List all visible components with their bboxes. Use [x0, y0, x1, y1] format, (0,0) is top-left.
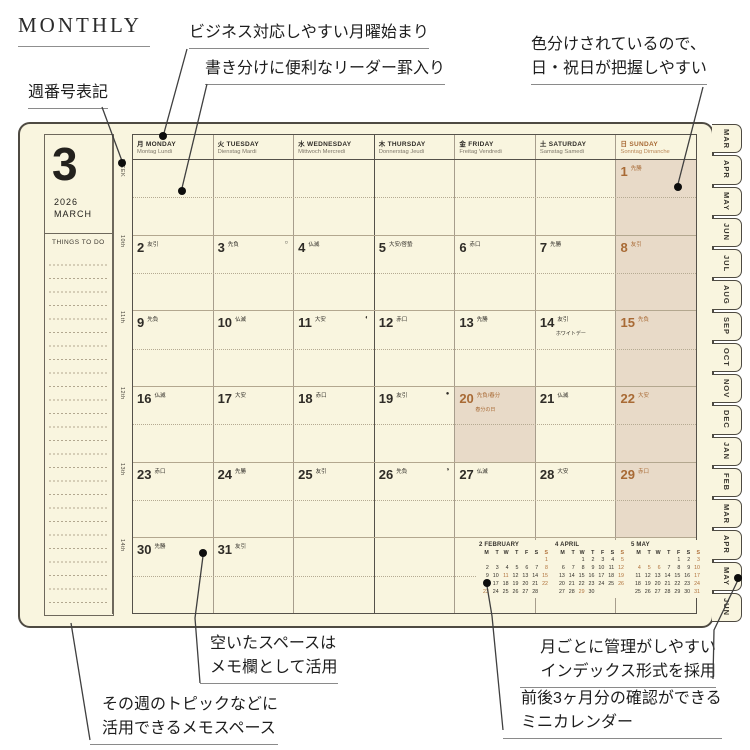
- date-number: 22: [620, 391, 634, 406]
- date-number: 3: [218, 240, 225, 255]
- mini-date: [528, 557, 538, 564]
- mini-date: 6: [555, 565, 565, 572]
- annotation-mini-calendar-line1: 前後3ヶ月分の確認ができる: [521, 687, 722, 711]
- day-cell: 31友引: [214, 538, 295, 613]
- mini-date: 9: [585, 565, 595, 572]
- mini-date: [604, 589, 614, 596]
- mini-calendar-title: 4 APRIL: [555, 542, 624, 548]
- rokuyo-label: 赤口: [638, 469, 649, 475]
- date-number: 27: [459, 467, 473, 482]
- mini-date: 7: [528, 565, 538, 572]
- month-tab-label: MAY: [722, 567, 731, 586]
- mini-date: 10: [594, 565, 604, 572]
- date-number: 6: [459, 240, 466, 255]
- rokuyo-label: 赤口: [470, 242, 481, 248]
- day-header-subtitle: Donnerstag Jeudi: [379, 149, 455, 155]
- mini-date: 3: [594, 557, 604, 564]
- date-number: 9: [137, 315, 144, 330]
- month-tab-mar-2: MAR: [712, 499, 742, 528]
- mini-dow-label: F: [518, 550, 528, 557]
- mini-date: 30: [680, 589, 690, 596]
- week-number-label: 10th: [119, 235, 125, 248]
- mini-date: 11: [604, 565, 614, 572]
- month-tab-label: JUL: [722, 255, 731, 272]
- mini-date: 17: [690, 573, 700, 580]
- mini-dow-label: S: [614, 550, 624, 557]
- day-cell: 10仏滅: [214, 311, 295, 386]
- mini-date: 31: [690, 589, 700, 596]
- mini-dow-label: T: [489, 550, 499, 557]
- annotation-memo-space: 空いたスペースは メモ欄として活用: [200, 632, 338, 684]
- date-number: 10: [218, 315, 232, 330]
- day-cell: 7先勝: [536, 236, 617, 311]
- day-cell: 5大安/啓蟄: [374, 236, 456, 311]
- week-row: 2友引3先負○4仏滅5大安/啓蟄6赤口7先勝8友引: [133, 236, 696, 312]
- mini-calendar-title: 2 FEBRUARY: [479, 542, 548, 548]
- product-sheet: MONTHLY ビジネス対応しやすい月曜始まり 書き分けに便利なリーダー罫入り …: [0, 0, 750, 750]
- month-tab-may-2: MAY: [712, 562, 742, 591]
- mini-date: 16: [680, 573, 690, 580]
- mini-date: 16: [479, 581, 489, 588]
- mini-date: 23: [585, 581, 595, 588]
- week-row: 1先勝: [133, 160, 696, 236]
- day-cell: [536, 160, 617, 235]
- mini-date: [499, 557, 509, 564]
- annotation-memo-space-line1: 空いたスペースは: [210, 632, 338, 656]
- annotation-index-tabs-line2: インデックス形式を採用: [520, 660, 716, 684]
- mini-date: 30: [585, 589, 595, 596]
- month-tab-label: AUG: [722, 285, 731, 305]
- annotation-index-tabs-line1: 月ごとに管理がしやすい: [520, 636, 716, 660]
- mini-date: 14: [661, 573, 671, 580]
- mini-date: [631, 557, 641, 564]
- day-header-label: 水 WEDNESDAY: [298, 138, 374, 148]
- month-tab-jun-2: JUN: [712, 593, 742, 622]
- month-tab-aug: AUG: [712, 280, 742, 309]
- day-cell: 17大安: [214, 387, 295, 462]
- mini-dow-label: W: [651, 550, 661, 557]
- mini-date: 8: [670, 565, 680, 572]
- mini-dow-label: S: [538, 550, 548, 557]
- mini-date: 19: [614, 573, 624, 580]
- day-cell: 12赤口: [374, 311, 456, 386]
- annotation-weekly-topic-line2: 活用できるメモスペース: [102, 717, 278, 741]
- mini-date: 24: [489, 589, 499, 596]
- mini-date: 25: [499, 589, 509, 596]
- mini-date: 17: [489, 581, 499, 588]
- rokuyo-label: 先勝: [631, 166, 642, 172]
- mini-date: 1: [575, 557, 585, 564]
- planner-page: 3 2026 MARCH THINGS TO DO WEEK10th11th12…: [18, 122, 714, 628]
- mini-date: 22: [538, 581, 548, 588]
- day-header-subtitle: Sonntag Dimanche: [620, 149, 696, 155]
- rokuyo-label: 先勝: [235, 469, 246, 475]
- month-tab-oct: OCT: [712, 343, 742, 372]
- rokuyo-label: 先負: [638, 317, 649, 323]
- month-tab-may: MAY: [712, 187, 742, 216]
- rokuyo-label: 仏滅: [235, 317, 246, 323]
- date-number: 2: [137, 240, 144, 255]
- day-cell: 20先負/春分春分の日: [455, 387, 536, 462]
- year-month-label: 2026 MARCH: [54, 197, 92, 220]
- mini-dow-label: T: [509, 550, 519, 557]
- rokuyo-label: 友引: [396, 393, 407, 399]
- mini-dow-label: S: [528, 550, 538, 557]
- mini-date: 12: [509, 573, 519, 580]
- mini-date: 6: [518, 565, 528, 572]
- mini-date: 28: [528, 589, 538, 596]
- month-tab-jun: JUN: [712, 218, 742, 247]
- mini-date: 9: [479, 573, 489, 580]
- day-cell: 30先勝: [133, 538, 214, 613]
- mini-date: 21: [565, 581, 575, 588]
- month-tab-apr: APR: [712, 155, 742, 184]
- date-number: 26: [379, 467, 393, 482]
- rokuyo-label: 大安: [235, 393, 246, 399]
- day-cell: 28大安: [536, 463, 617, 538]
- day-header-label: 木 THURSDAY: [379, 138, 455, 148]
- mini-calendars: 2 FEBRUARYMTWTFSS12345678910111213141516…: [477, 540, 702, 598]
- day-cell: 13先勝: [455, 311, 536, 386]
- mini-date: 23: [680, 581, 690, 588]
- day-cell: 23赤口: [133, 463, 214, 538]
- rokuyo-label: 大安/啓蟄: [389, 242, 413, 248]
- rokuyo-label: 仏滅: [308, 242, 319, 248]
- rokuyo-label: 友引: [147, 242, 158, 248]
- mini-date: [509, 557, 519, 564]
- mini-date: 13: [555, 573, 565, 580]
- mini-date: [651, 557, 661, 564]
- month-name-label: MARCH: [54, 209, 92, 221]
- rokuyo-label: 先勝: [550, 242, 561, 248]
- rokuyo-label: 先勝: [477, 317, 488, 323]
- mini-date: 29: [575, 589, 585, 596]
- date-number: 7: [540, 240, 547, 255]
- things-to-do-ruled-lines: [49, 252, 109, 609]
- moon-phase-icon: ○: [285, 240, 289, 246]
- month-tab-label: APR: [722, 160, 731, 179]
- mini-date: 6: [651, 565, 661, 572]
- date-number: 13: [459, 315, 473, 330]
- mini-date: 12: [641, 573, 651, 580]
- date-number: 19: [379, 391, 393, 406]
- mini-date: 5: [614, 557, 624, 564]
- day-cell: 21仏滅: [536, 387, 617, 462]
- annotation-leader-rule: 書き分けに便利なリーダー罫入り: [205, 57, 445, 85]
- day-cell: 22大安: [616, 387, 696, 462]
- day-header-monday: 月 MONDAYMontag Lundi: [133, 135, 214, 159]
- mini-date: 28: [565, 589, 575, 596]
- year-label: 2026: [54, 197, 92, 209]
- annotation-color-coded-line1: 色分けされているので、: [531, 33, 707, 57]
- day-header-tuesday: 火 TUESDAYDienstag Mardi: [214, 135, 295, 159]
- date-number: 21: [540, 391, 554, 406]
- month-tab-label: FEB: [722, 473, 731, 491]
- day-header-label: 日 SUNDAY: [620, 138, 696, 148]
- mini-dow-label: W: [499, 550, 509, 557]
- month-tab-nov: NOV: [712, 374, 742, 403]
- mini-date: 19: [509, 581, 519, 588]
- day-cell: 29赤口: [616, 463, 696, 538]
- day-cell: 16仏滅: [133, 387, 214, 462]
- mini-date: [518, 557, 528, 564]
- day-cell: 19友引●: [374, 387, 456, 462]
- mini-date: 15: [670, 573, 680, 580]
- day-cell: 8友引: [616, 236, 696, 311]
- mini-date: 24: [690, 581, 700, 588]
- date-number: 24: [218, 467, 232, 482]
- annotation-memo-space-line2: メモ欄として活用: [210, 656, 338, 680]
- day-cell: 27仏滅: [455, 463, 536, 538]
- mini-date: 3: [690, 557, 700, 564]
- day-header-subtitle: Dienstag Mardi: [218, 149, 294, 155]
- mini-date: 20: [518, 581, 528, 588]
- week-number-label: WEEK: [119, 159, 125, 177]
- mini-date: 27: [518, 589, 528, 596]
- rokuyo-label: 仏滅: [557, 393, 568, 399]
- moon-phase-icon: ●: [446, 391, 450, 397]
- rokuyo-label: 先負: [228, 242, 239, 248]
- annotation-color-coded-line2: 日・祝日が把握しやすい: [531, 57, 707, 81]
- mini-date: 14: [528, 573, 538, 580]
- mini-date: [489, 557, 499, 564]
- mini-dow-label: S: [690, 550, 700, 557]
- month-panel: 3 2026 MARCH THINGS TO DO: [44, 134, 114, 616]
- day-header-label: 土 SATURDAY: [540, 138, 616, 148]
- day-cell: 26先負◑: [374, 463, 456, 538]
- mini-calendar-grid: MTWTFSS123456789101112131415161718192021…: [555, 550, 624, 596]
- rokuyo-label: 先負/春分: [477, 393, 501, 399]
- month-tab-jan: JAN: [712, 437, 742, 466]
- month-tab-label: MAR: [722, 129, 731, 149]
- date-number: 1: [620, 164, 627, 179]
- mini-date: 22: [575, 581, 585, 588]
- day-header-label: 月 MONDAY: [137, 138, 213, 148]
- mini-calendar-title: 5 MAY: [631, 542, 700, 548]
- mini-dow-label: S: [680, 550, 690, 557]
- date-number: 25: [298, 467, 312, 482]
- mini-dow-label: F: [594, 550, 604, 557]
- mini-date: 13: [518, 573, 528, 580]
- rokuyo-label: 友引: [316, 469, 327, 475]
- mini-date: 26: [509, 589, 519, 596]
- mini-date: 3: [489, 565, 499, 572]
- week-number-label: 13th: [119, 463, 125, 476]
- mini-date: 8: [575, 565, 585, 572]
- month-tab-dec: DEC: [712, 405, 742, 434]
- day-cell: [214, 160, 295, 235]
- week-column: WEEK10th11th12th13th14th: [112, 134, 133, 614]
- mini-date: [479, 557, 489, 564]
- day-cell: 11大安◐: [294, 311, 375, 386]
- day-cell: [455, 160, 536, 235]
- mini-dow-label: W: [575, 550, 585, 557]
- day-header-label: 金 FRIDAY: [459, 138, 535, 148]
- mini-date: 12: [614, 565, 624, 572]
- mini-date: 18: [499, 581, 509, 588]
- date-number: 23: [137, 467, 151, 482]
- day-cell: 3先負○: [214, 236, 295, 311]
- index-tabs: MARAPRMAYJUNJULAUGSEPOCTNOVDECJANFEBMARA…: [712, 124, 742, 622]
- day-cell: 24先勝: [214, 463, 295, 538]
- week-number-label: 14th: [119, 539, 125, 552]
- leader-line: [164, 49, 187, 133]
- week-row: 9先負10仏滅11大安◐12赤口13先勝14友引ホワイトデー15先負: [133, 311, 696, 387]
- date-number: 30: [137, 542, 151, 557]
- day-cell: 2友引: [133, 236, 214, 311]
- day-note: ホワイトデー: [556, 331, 613, 337]
- annotation-week-number: 週番号表記: [28, 81, 108, 109]
- moon-phase-icon: ◑: [446, 467, 450, 473]
- day-cell: [133, 160, 214, 235]
- mini-date: 1: [670, 557, 680, 564]
- month-number: 3: [52, 141, 78, 187]
- mini-date: 23: [479, 589, 489, 596]
- rokuyo-label: 赤口: [396, 317, 407, 323]
- mini-date: 24: [594, 581, 604, 588]
- mini-date: 16: [585, 573, 595, 580]
- mini-dow-label: T: [565, 550, 575, 557]
- month-tab-label: DEC: [722, 410, 731, 429]
- annotation-monday-start: ビジネス対応しやすい月曜始まり: [189, 21, 429, 49]
- mini-date: 7: [661, 565, 671, 572]
- mini-date: 15: [538, 573, 548, 580]
- mini-date: 26: [614, 581, 624, 588]
- mini-calendar-grid: MTWTFSS123456789101112131415161718192021…: [631, 550, 700, 596]
- mini-date: 26: [641, 589, 651, 596]
- month-tab-sep: SEP: [712, 312, 742, 341]
- day-header-label: 火 TUESDAY: [218, 138, 294, 148]
- month-tab-label: MAR: [722, 504, 731, 524]
- mini-date: 1: [538, 557, 548, 564]
- day-cell: 25友引: [294, 463, 375, 538]
- week-number-label: 11th: [119, 311, 125, 323]
- mini-date: 4: [631, 565, 641, 572]
- mini-date: 25: [631, 589, 641, 596]
- date-number: 28: [540, 467, 554, 482]
- date-number: 11: [298, 315, 312, 330]
- day-cell: [294, 538, 375, 613]
- month-tab-label: OCT: [722, 348, 731, 367]
- month-tab-label: NOV: [722, 379, 731, 398]
- mini-date: 14: [565, 573, 575, 580]
- mini-date: [538, 589, 548, 596]
- mini-date: 10: [489, 573, 499, 580]
- mini-date: [614, 589, 624, 596]
- annotation-mini-calendar-line2: ミニカレンダー: [521, 711, 722, 735]
- month-tab-label: JUN: [722, 223, 731, 241]
- moon-phase-icon: ◐: [365, 315, 369, 321]
- day-header-friday: 金 FRIDAYFreitag Vendredi: [455, 135, 536, 159]
- day-cell: 1先勝: [616, 160, 696, 235]
- mini-date: 11: [631, 573, 641, 580]
- annotation-color-coded: 色分けされているので、 日・祝日が把握しやすい: [531, 33, 707, 85]
- week-row: 16仏滅17大安18赤口19友引●20先負/春分春分の日21仏滅22大安: [133, 387, 696, 463]
- rokuyo-label: 友引: [235, 544, 246, 550]
- date-number: 14: [540, 315, 554, 330]
- mini-date: 29: [670, 589, 680, 596]
- day-cell: [374, 160, 456, 235]
- mini-date: 25: [604, 581, 614, 588]
- day-header-subtitle: Samstag Samedi: [540, 149, 616, 155]
- things-to-do-label: THINGS TO DO: [52, 239, 105, 246]
- mini-date: 9: [680, 565, 690, 572]
- mini-dow-label: F: [670, 550, 680, 557]
- leader-line: [71, 623, 90, 740]
- date-number: 18: [298, 391, 312, 406]
- rokuyo-label: 赤口: [154, 469, 165, 475]
- rokuyo-label: 友引: [557, 317, 568, 323]
- week-row: 23赤口24先勝25友引26先負◑27仏滅28大安29赤口: [133, 463, 696, 539]
- mini-date: 28: [661, 589, 671, 596]
- mini-date: 5: [509, 565, 519, 572]
- rokuyo-label: 大安: [557, 469, 568, 475]
- day-header-thursday: 木 THURSDAYDonnerstag Jeudi: [374, 135, 456, 159]
- date-number: 12: [379, 315, 393, 330]
- month-tab-label: SEP: [722, 317, 731, 335]
- mini-date: 18: [631, 581, 641, 588]
- week-number-label: 12th: [119, 387, 125, 400]
- date-number: 4: [298, 240, 305, 255]
- day-header-subtitle: Montag Lundi: [137, 149, 213, 155]
- mini-date: 2: [585, 557, 595, 564]
- mini-date: 15: [575, 573, 585, 580]
- day-cell: [294, 160, 375, 235]
- date-number: 20: [459, 391, 473, 406]
- rokuyo-label: 大安: [638, 393, 649, 399]
- mini-dow-label: S: [604, 550, 614, 557]
- day-note: 春分の日: [475, 407, 532, 413]
- day-cell: 18赤口: [294, 387, 375, 462]
- mini-date: 17: [594, 573, 604, 580]
- mini-dow-label: T: [641, 550, 651, 557]
- month-tab-label: MAY: [722, 192, 731, 211]
- mini-date: 4: [499, 565, 509, 572]
- mini-date: 13: [651, 573, 661, 580]
- date-number: 16: [137, 391, 151, 406]
- date-number: 31: [218, 542, 232, 557]
- mini-date: 18: [604, 573, 614, 580]
- mini-dow-label: M: [479, 550, 489, 557]
- mini-date: [641, 557, 651, 564]
- panel-divider: [45, 233, 113, 234]
- mini-calendar: 2 FEBRUARYMTWTFSS12345678910111213141516…: [479, 542, 548, 596]
- date-number: 29: [620, 467, 634, 482]
- month-tab-label: APR: [722, 535, 731, 554]
- mini-date: 2: [479, 565, 489, 572]
- mini-calendar: 5 MAYMTWTFSS1234567891011121314151617181…: [631, 542, 700, 596]
- mini-date: 20: [555, 581, 565, 588]
- month-tab-apr-2: APR: [712, 530, 742, 559]
- mini-date: 21: [528, 581, 538, 588]
- day-cell: 15先負: [616, 311, 696, 386]
- annotation-mini-calendar: 前後3ヶ月分の確認ができる ミニカレンダー: [503, 687, 722, 739]
- date-number: 17: [218, 391, 232, 406]
- day-cell: [374, 538, 456, 613]
- mini-date: 4: [604, 557, 614, 564]
- mini-date: 7: [565, 565, 575, 572]
- mini-calendar-grid: MTWTFSS123456789101112131415161718192021…: [479, 550, 548, 596]
- month-tab-feb: FEB: [712, 468, 742, 497]
- annotation-weekly-topic-line1: その週のトピックなどに: [102, 693, 278, 717]
- date-number: 8: [620, 240, 627, 255]
- mini-date: [661, 557, 671, 564]
- rokuyo-label: 仏滅: [154, 393, 165, 399]
- month-tab-jul: JUL: [712, 249, 742, 278]
- mini-date: 19: [641, 581, 651, 588]
- day-header-wednesday: 水 WEDNESDAYMittwoch Mercredi: [294, 135, 375, 159]
- mini-date: 20: [651, 581, 661, 588]
